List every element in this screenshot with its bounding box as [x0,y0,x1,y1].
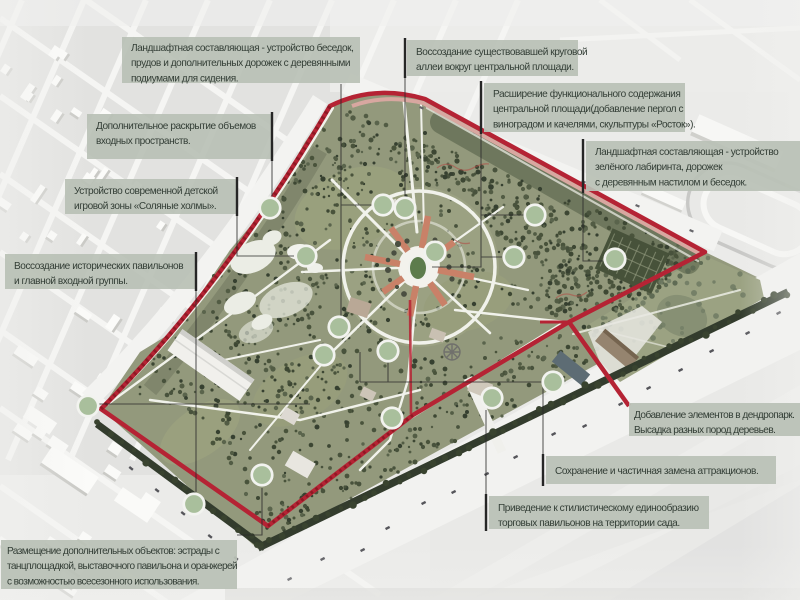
svg-text:подиумами для сидения.: подиумами для сидения. [131,73,238,84]
svg-text:прудов и дополнительных дороже: прудов и дополнительных дорожек с деревя… [131,58,350,69]
svg-text:Добавление элементов в дендроп: Добавление элементов в дендропарк. [634,409,794,421]
svg-text:Устройство современной детской: Устройство современной детской [74,186,218,197]
svg-text:Ландшафтная составляющая - уст: Ландшафтная составляющая - устройство бе… [131,42,353,54]
svg-text:с возможностью всесезонного ис: с возможностью всесезонного использовани… [7,576,199,587]
svg-text:Расширение функционального сод: Расширение функционального содержания [493,88,680,100]
svg-text:Воссоздание исторических павил: Воссоздание исторических павильонов [14,261,183,272]
svg-text:и главной входной группы.: и главной входной группы. [14,276,128,287]
svg-text:аллеи вокруг центральной площа: аллеи вокруг центральной площади. [416,62,574,73]
svg-text:Размещение дополнительных объе: Размещение дополнительных объектов: эстр… [7,545,220,557]
svg-text:Высадка разных пород деревьев.: Высадка разных пород деревьев. [634,425,775,436]
svg-text:Воссоздание существовавшей кру: Воссоздание существовавшей круговой [416,47,587,58]
svg-text:центральной площади(добавление: центральной площади(добавление пергол с [493,103,683,115]
svg-text:игровой зоны «Соляные холмы».: игровой зоны «Соляные холмы». [74,201,216,212]
svg-text:с деревянным настилом и беседо: с деревянным настилом и беседок. [595,176,747,188]
svg-text:зелёного лабиринта, дорожек: зелёного лабиринта, дорожек [595,161,723,173]
svg-text:торговых павильонов на террито: торговых павильонов на территории сада. [498,518,680,529]
svg-text:Ландшафтная составляющая - уст: Ландшафтная составляющая - устройство [595,146,779,158]
svg-text:Сохранение и частичная замена: Сохранение и частичная замена аттракцион… [555,466,758,477]
svg-text:входных пространств.: входных пространств. [96,136,190,147]
svg-text:Приведение к стилистическому е: Приведение к стилистическому единообрази… [498,502,699,514]
svg-text:танцплощадкой, выставочного па: танцплощадкой, выставочного павильона и … [7,561,237,572]
svg-text:виноградом и качелями, скульпт: виноградом и качелями, скульптуры «Росто… [493,119,695,130]
svg-text:Дополнительное раскрытие объем: Дополнительное раскрытие объемов [96,120,256,132]
